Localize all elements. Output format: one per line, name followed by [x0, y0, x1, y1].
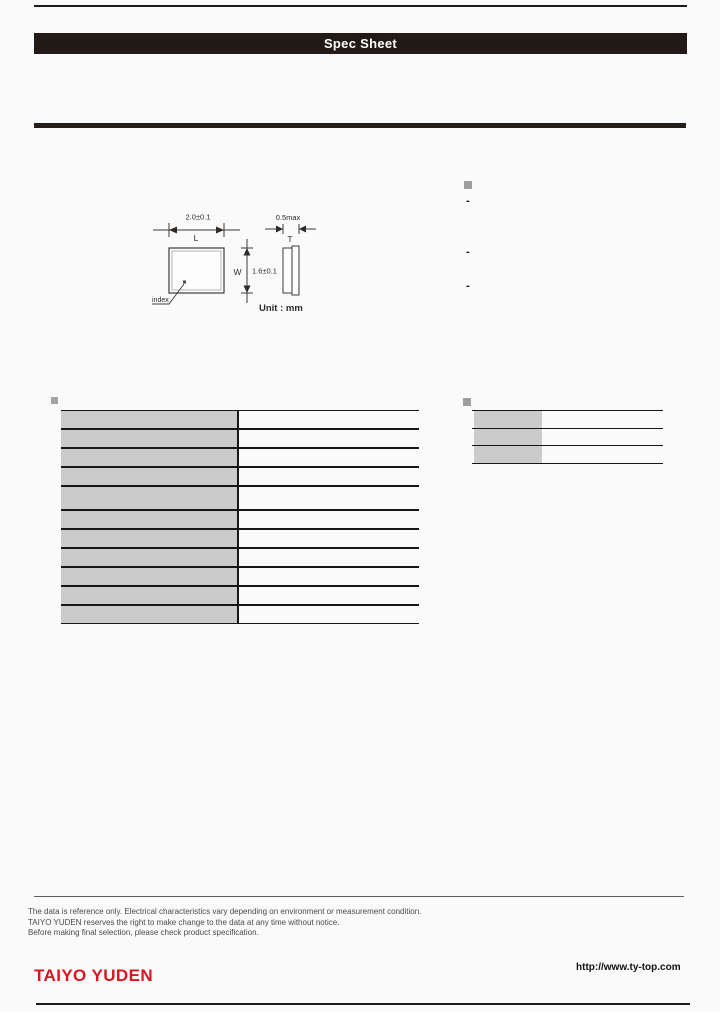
table-row: [61, 411, 419, 430]
table-row: [61, 468, 419, 487]
table-row: [61, 587, 419, 606]
feature-dash: -: [466, 281, 470, 291]
table-label-cell: [61, 487, 239, 509]
table-row: [472, 429, 663, 447]
table-label-cell: [61, 587, 239, 604]
table-value-cell: [542, 411, 663, 428]
table-label-cell: [61, 568, 239, 585]
table-value-cell: [239, 449, 419, 466]
table-value-cell: [239, 511, 419, 528]
table-row: [61, 449, 419, 468]
table-value-cell: [542, 446, 663, 463]
header-rule-thick: [34, 123, 686, 128]
table-value-cell: [239, 606, 419, 623]
table-value-cell: [239, 411, 419, 428]
table-value-cell: [542, 429, 663, 446]
table-label-cell: [474, 446, 542, 463]
table-value-cell: [239, 549, 419, 566]
front-view: [169, 248, 224, 293]
width-label: W: [233, 267, 241, 277]
length-dim-text: 2.0±0.1: [186, 213, 211, 222]
length-label: L: [194, 233, 199, 243]
table-label-cell: [61, 511, 239, 528]
arrowhead-left-icon: [169, 227, 177, 234]
arrowhead-inward-left-icon: [299, 226, 306, 233]
table-label-cell: [61, 549, 239, 566]
arrowhead-up-icon: [244, 248, 251, 256]
thickness-label: T: [287, 234, 292, 244]
side-view: [283, 246, 299, 295]
feature-dash: -: [466, 247, 470, 257]
disclaimer-line: Before making final selection, please ch…: [28, 928, 421, 939]
dimension-drawing: 2.0±0.1 L index W 1.6±0.1 0.5max T Unit …: [140, 198, 340, 320]
table-row: [61, 487, 419, 511]
width-dim-text: 1.6±0.1: [252, 267, 277, 276]
spec-table-section-bullet-icon: [51, 397, 58, 404]
table-label-cell: [61, 530, 239, 547]
table-row: [61, 549, 419, 568]
table-label-cell: [61, 449, 239, 466]
table-value-cell: [239, 430, 419, 447]
index-mark-icon: [183, 281, 186, 284]
page-title: Spec Sheet: [324, 36, 397, 51]
table-label-cell: [61, 606, 239, 623]
table-label-cell: [474, 429, 542, 446]
disclaimer: The data is reference only. Electrical c…: [28, 907, 421, 939]
table-value-cell: [239, 487, 419, 509]
table-value-cell: [239, 587, 419, 604]
footer-rule: [36, 1003, 690, 1005]
feature-dash: -: [466, 196, 470, 206]
table-row: [61, 430, 419, 449]
table-label-cell: [61, 468, 239, 485]
arrowhead-inward-right-icon: [276, 226, 283, 233]
table-value-cell: [239, 468, 419, 485]
notes-divider: [34, 896, 684, 897]
table-row: [472, 411, 663, 429]
table-row: [472, 446, 663, 464]
table-label-cell: [61, 430, 239, 447]
features-section-bullet-icon: [464, 181, 472, 189]
thickness-dim-text: 0.5max: [276, 213, 301, 222]
table-label-cell: [61, 411, 239, 428]
disclaimer-line: TAIYO YUDEN reserves the right to make c…: [28, 918, 421, 929]
table-row: [61, 606, 419, 624]
rating-table: [472, 410, 663, 464]
arrowhead-right-icon: [216, 227, 224, 234]
arrowhead-down-icon: [244, 286, 251, 294]
footer-url: http://www.ty-top.com: [576, 962, 681, 973]
table-row: [61, 568, 419, 587]
table-label-cell: [474, 411, 542, 428]
table-value-cell: [239, 568, 419, 585]
table-value-cell: [239, 530, 419, 547]
header-rule-top: [34, 5, 687, 7]
disclaimer-line: The data is reference only. Electrical c…: [28, 907, 421, 918]
unit-note: Unit : mm: [259, 303, 303, 314]
rating-table-section-bullet-icon: [463, 398, 471, 406]
index-label: index: [152, 297, 169, 304]
company-logo: TAIYO YUDEN: [34, 966, 153, 986]
spec-sheet-bar: Spec Sheet: [34, 33, 687, 54]
table-row: [61, 511, 419, 530]
spec-table: [61, 410, 419, 624]
table-row: [61, 530, 419, 549]
